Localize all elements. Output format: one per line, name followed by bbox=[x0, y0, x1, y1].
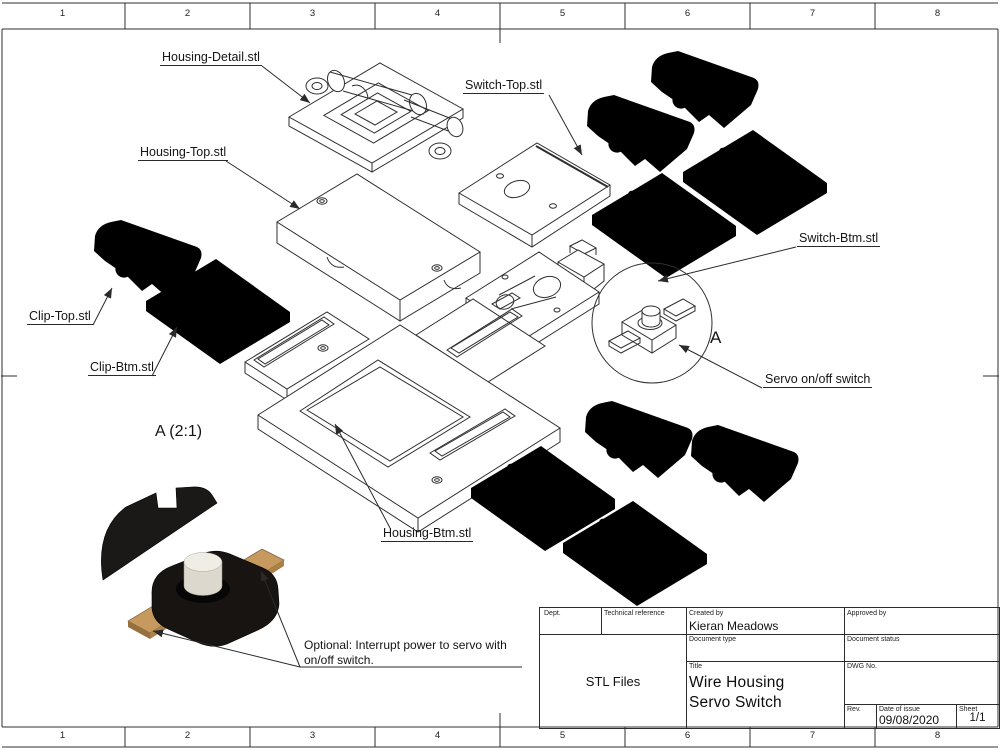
created-by-value: Kieran Meadows bbox=[689, 619, 778, 633]
label-switch-top: Switch-Top.stl bbox=[463, 79, 544, 94]
rev-label: Rev. bbox=[847, 706, 861, 713]
zone-number-top-5: 5 bbox=[500, 8, 625, 19]
label-clip-btm: Clip-Btm.stl bbox=[88, 361, 156, 376]
title-block-divider bbox=[876, 704, 877, 728]
zone-number-bottom-2: 2 bbox=[125, 730, 250, 741]
zone-number-bottom-5: 5 bbox=[500, 730, 625, 741]
date-of-issue-value: 09/08/2020 bbox=[879, 713, 939, 727]
document-type-label: Document type bbox=[689, 636, 736, 643]
dept-label: Dept. bbox=[544, 610, 561, 617]
title-block-divider bbox=[686, 608, 687, 728]
title-block-divider bbox=[686, 661, 999, 662]
detail-view-title: A (2:1) bbox=[155, 423, 202, 441]
label-servo-switch: Servo on/off switch bbox=[763, 373, 872, 388]
title-block: Dept. Technical reference Created by Kie… bbox=[539, 607, 1000, 729]
detail-marker-a: A bbox=[710, 328, 721, 348]
created-by-label: Created by bbox=[689, 610, 723, 617]
note-line-2: on/off switch. bbox=[304, 653, 374, 668]
switch-button-top bbox=[184, 553, 222, 572]
label-housing-btm: Housing-Btm.stl bbox=[381, 527, 473, 542]
label-housing-detail: Housing-Detail.stl bbox=[160, 51, 262, 66]
title-block-divider bbox=[601, 608, 602, 634]
housing-detail-drawing bbox=[289, 63, 466, 172]
detail-circle-a bbox=[592, 263, 712, 383]
technical-reference-label: Technical reference bbox=[604, 610, 665, 617]
clip-top-drawing-5 bbox=[691, 425, 799, 502]
zone-number-top-1: 1 bbox=[0, 8, 125, 19]
label-switch-btm: Switch-Btm.stl bbox=[797, 232, 880, 247]
zone-number-top-8: 8 bbox=[875, 8, 1000, 19]
document-status-label: Document status bbox=[847, 636, 900, 643]
label-clip-top: Clip-Top.stl bbox=[27, 310, 93, 325]
zone-number-top-7: 7 bbox=[750, 8, 875, 19]
approved-by-label: Approved by bbox=[847, 610, 886, 617]
zone-number-bottom-1: 1 bbox=[0, 730, 125, 741]
zone-number-bottom-6: 6 bbox=[625, 730, 750, 741]
title-block-divider bbox=[844, 704, 999, 705]
zone-number-top-6: 6 bbox=[625, 8, 750, 19]
zone-number-top-3: 3 bbox=[250, 8, 375, 19]
switch-top-drawing bbox=[459, 143, 610, 247]
label-housing-top: Housing-Top.stl bbox=[138, 146, 228, 161]
zone-number-top-2: 2 bbox=[125, 8, 250, 19]
zone-number-bottom-4: 4 bbox=[375, 730, 500, 741]
note-line-1: Optional: Interrupt power to servo with bbox=[304, 638, 507, 653]
drawing-title-line-1: Wire Housing bbox=[689, 674, 784, 692]
date-of-issue-label: Date of issue bbox=[879, 706, 920, 713]
zone-number-bottom-7: 7 bbox=[750, 730, 875, 741]
zone-number-bottom-3: 3 bbox=[250, 730, 375, 741]
title-block-divider bbox=[844, 608, 845, 728]
document-type-value: STL Files bbox=[540, 634, 686, 728]
servo-switch-render bbox=[101, 487, 284, 646]
zone-number-top-4: 4 bbox=[375, 8, 500, 19]
housing-top-drawing bbox=[277, 174, 480, 321]
zone-number-bottom-8: 8 bbox=[875, 730, 1000, 741]
dwg-no-label: DWG No. bbox=[847, 663, 877, 670]
sheet-value: 1/1 bbox=[956, 712, 999, 724]
title-label: Title bbox=[689, 663, 702, 670]
drawing-title-line-2: Servo Switch bbox=[689, 694, 782, 712]
drawing-sheet: 1 2 3 4 5 6 7 8 1 2 3 4 5 6 7 8 Housing-… bbox=[0, 0, 1000, 750]
clip-top-drawing-4 bbox=[585, 401, 693, 478]
